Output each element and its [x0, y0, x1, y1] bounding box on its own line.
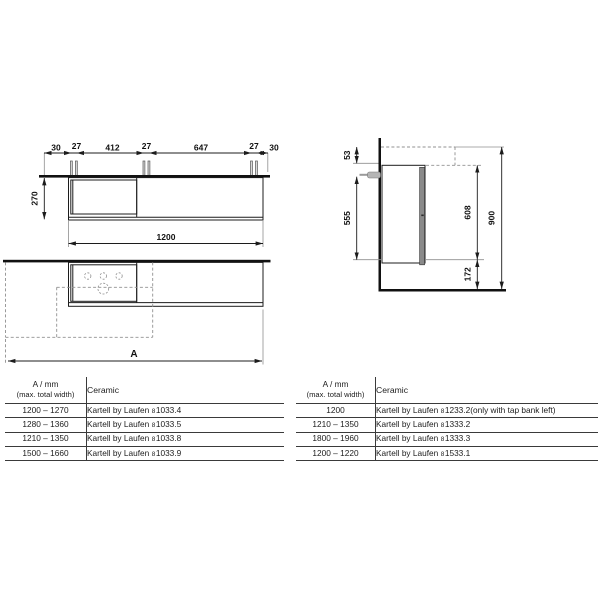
technical-drawing-page: 30 27 412 27 647 27 30 270 [0, 0, 600, 600]
ceramic-cell: Kartell by Laufen81233.2(only with tap b… [376, 404, 599, 418]
size-prefix: 8 [441, 451, 445, 458]
brand-text: Kartell by Laufen [376, 405, 438, 415]
size-prefix: 8 [441, 422, 445, 429]
width-range-cell: 1500 – 1660 [5, 446, 87, 460]
dim-270: 270 [30, 178, 45, 219]
wall-line [379, 138, 382, 292]
article-number: 1333.2 [445, 419, 470, 429]
size-prefix: 8 [441, 436, 445, 443]
tap-icon [360, 172, 381, 178]
column-header-ceramic: Ceramic [87, 377, 285, 404]
header-a-mm: A / mm [5, 380, 86, 390]
plan-view: A [3, 260, 271, 365]
ceramic-table-right: A / mm (max. total width) Ceramic 1200 K… [296, 377, 598, 461]
side-view: 53 555 608 900 172 [342, 138, 506, 292]
dim-chain-top: 30 27 412 27 647 27 30 [44, 141, 279, 175]
dim-555: 555 [342, 177, 382, 260]
brand-text: Kartell by Laufen [376, 433, 438, 443]
note-text: (only with tap bank left) [470, 405, 555, 415]
cabinet-side-outline [382, 165, 425, 263]
ceramic-cell: Kartell by Laufen81033.9 [87, 446, 285, 460]
dim-label-555: 555 [342, 211, 352, 225]
dim-label-27-2: 27 [142, 141, 152, 151]
basin-unit-front-outline [71, 180, 137, 214]
table-row: 1500 – 1660 Kartell by Laufen81033.9 [5, 446, 284, 460]
width-range-cell: 1280 – 1360 [5, 418, 87, 432]
table-header-row: A / mm (max. total width) Ceramic [5, 377, 284, 404]
header-max-total-width: (max. total width) [296, 390, 375, 399]
header-a-mm: A / mm [296, 380, 375, 390]
header-max-total-width: (max. total width) [5, 390, 86, 399]
dim-label-27-3: 27 [249, 141, 259, 151]
dim-label-1200: 1200 [157, 232, 176, 242]
column-header-width: A / mm (max. total width) [296, 377, 376, 404]
dim-label-A: A [130, 349, 137, 360]
table-row: 1200 Kartell by Laufen81233.2(only with … [296, 404, 598, 418]
width-range-cell: 1210 – 1350 [5, 432, 87, 446]
article-number: 1233.2 [445, 405, 470, 415]
ceramic-cell: Kartell by Laufen81033.5 [87, 418, 285, 432]
article-number: 1533.1 [445, 448, 470, 458]
brand-text: Kartell by Laufen [87, 419, 149, 429]
dim-label-53: 53 [342, 150, 352, 160]
width-range-cell: 1210 – 1350 [296, 418, 376, 432]
width-range-cell: 1200 – 1220 [296, 446, 376, 460]
article-number: 1333.3 [445, 433, 470, 443]
dim-900: 900 [487, 147, 502, 289]
size-prefix: 8 [152, 422, 156, 429]
table-row: 1200 – 1220 Kartell by Laufen81533.1 [296, 446, 598, 460]
dim-label-30-left: 30 [51, 143, 61, 153]
dim-label-27-1: 27 [72, 141, 82, 151]
dim-53: 53 [342, 147, 378, 163]
door-handle-mark [421, 215, 423, 217]
ceramic-cell: Kartell by Laufen81033.8 [87, 432, 285, 446]
brand-text: Kartell by Laufen [87, 405, 149, 415]
column-header-width: A / mm (max. total width) [5, 377, 87, 404]
column-header-ceramic: Ceramic [376, 377, 599, 404]
dim-label-172: 172 [462, 267, 472, 281]
floor-line [379, 289, 507, 292]
table-row: 1200 – 1270 Kartell by Laufen81033.4 [5, 404, 284, 418]
brand-text: Kartell by Laufen [376, 448, 438, 458]
mounting-brackets [70, 161, 257, 175]
dim-label-647: 647 [194, 143, 208, 153]
table-row: 1210 – 1350 Kartell by Laufen81333.2 [296, 418, 598, 432]
dim-label-608: 608 [462, 205, 472, 219]
ceramic-cell: Kartell by Laufen81033.4 [87, 404, 285, 418]
table-row: 1210 – 1350 Kartell by Laufen81033.8 [5, 432, 284, 446]
dim-label-412: 412 [105, 143, 119, 153]
dimension-drawing: 30 27 412 27 647 27 30 270 [0, 0, 600, 375]
width-range-cell: 1800 – 1960 [296, 432, 376, 446]
dim-608: 608 [426, 165, 484, 259]
brand-text: Kartell by Laufen [87, 433, 149, 443]
table-header-row: A / mm (max. total width) Ceramic [296, 377, 598, 404]
ceramic-cell: Kartell by Laufen81533.1 [376, 446, 599, 460]
article-number: 1033.4 [156, 405, 181, 415]
article-number: 1033.9 [156, 448, 181, 458]
dim-label-30-right: 30 [269, 143, 279, 153]
table-row: 1800 – 1960 Kartell by Laufen81333.3 [296, 432, 598, 446]
article-number: 1033.8 [156, 433, 181, 443]
width-range-cell: 1200 [296, 404, 376, 418]
dim-172: 172 [462, 260, 477, 289]
size-prefix: 8 [441, 408, 445, 415]
dim-label-900: 900 [487, 211, 497, 225]
ceramic-cell: Kartell by Laufen81333.2 [376, 418, 599, 432]
ceramic-table-left: A / mm (max. total width) Ceramic 1200 –… [5, 377, 284, 461]
brand-text: Kartell by Laufen [376, 419, 438, 429]
ceramic-cell: Kartell by Laufen81333.3 [376, 432, 599, 446]
front-view: 30 27 412 27 647 27 30 270 [30, 141, 279, 247]
article-number: 1033.5 [156, 419, 181, 429]
dim-1200: 1200 [69, 220, 264, 247]
dim-label-270: 270 [30, 191, 40, 205]
brand-text: Kartell by Laufen [87, 448, 149, 458]
size-prefix: 8 [152, 436, 156, 443]
table-row: 1280 – 1360 Kartell by Laufen81033.5 [5, 418, 284, 432]
width-range-cell: 1200 – 1270 [5, 404, 87, 418]
size-prefix: 8 [152, 408, 156, 415]
size-prefix: 8 [152, 451, 156, 458]
